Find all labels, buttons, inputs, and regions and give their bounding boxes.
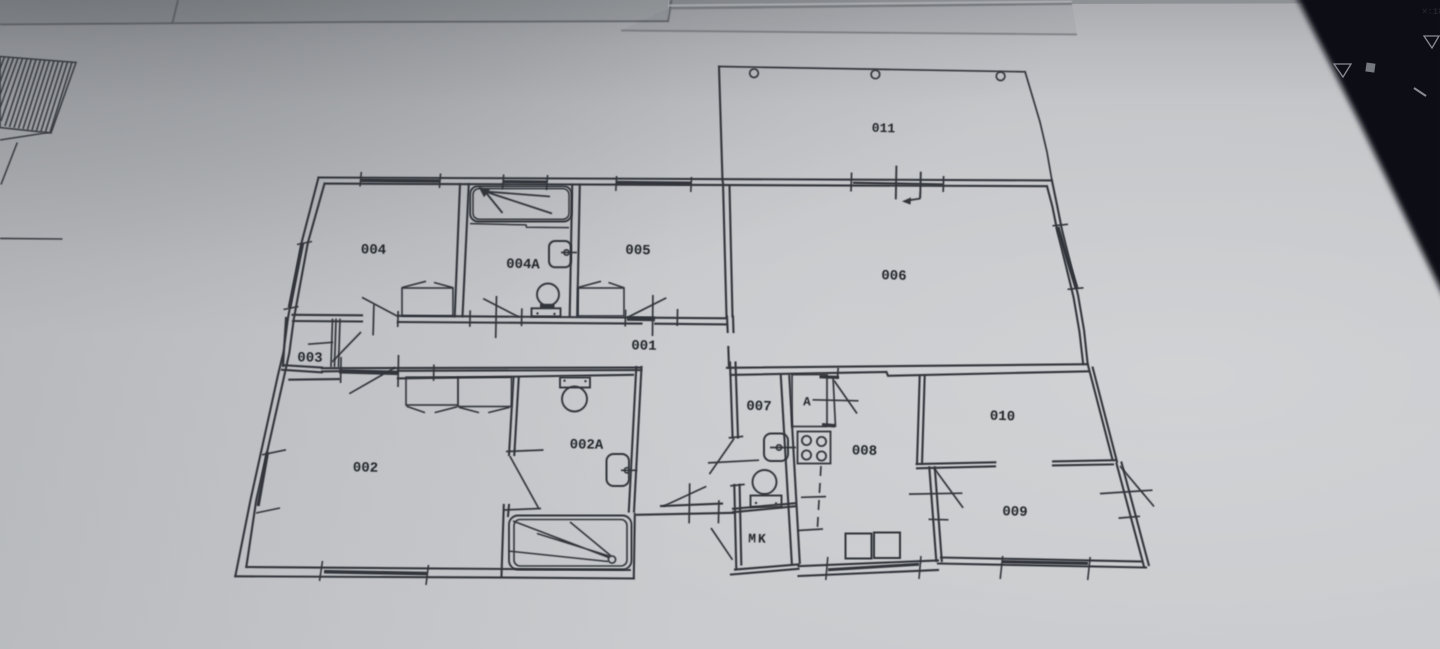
svg-text:002A: 002A (570, 437, 605, 454)
svg-text:004A: 004A (506, 257, 541, 274)
svg-text:008: 008 (852, 443, 878, 460)
svg-text:010: 010 (990, 409, 1016, 426)
svg-text:005: 005 (625, 243, 651, 260)
svg-text:001: 001 (631, 338, 657, 355)
svg-text:011: 011 (872, 121, 896, 137)
svg-text:003: 003 (297, 350, 322, 366)
svg-text:004: 004 (361, 242, 387, 259)
svg-text:A: A (803, 395, 811, 409)
svg-text:006: 006 (881, 268, 907, 285)
svg-text:007: 007 (746, 399, 772, 416)
svg-text:MK: MK (748, 531, 768, 546)
svg-text:×:18: ×:18 (1422, 7, 1440, 17)
svg-text:009: 009 (1002, 504, 1028, 521)
svg-text:002: 002 (353, 460, 379, 477)
